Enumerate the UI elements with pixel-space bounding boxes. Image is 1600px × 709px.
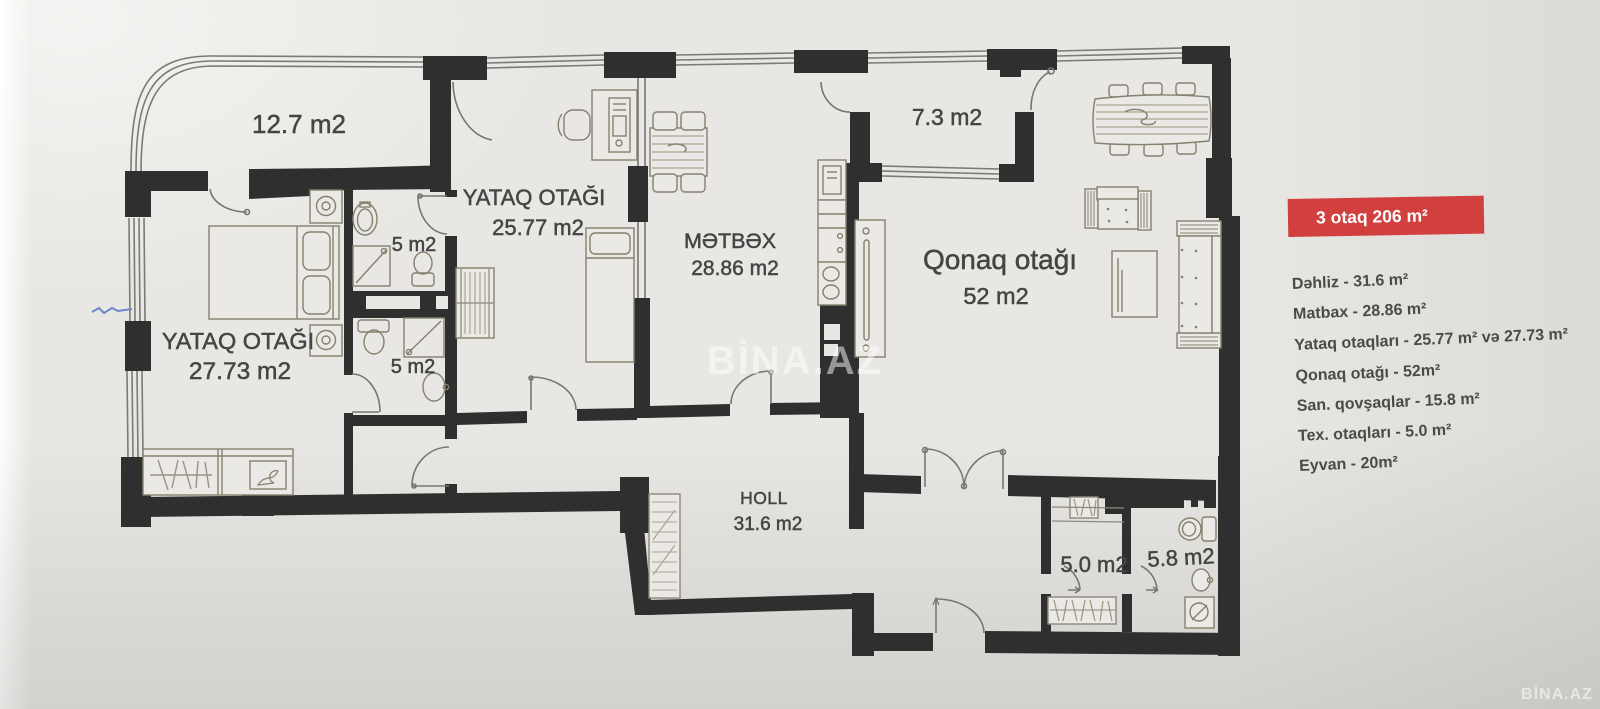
svg-text:5 m2: 5 m2 — [392, 234, 436, 256]
svg-text:MƏTBƏX: MƏTBƏX — [684, 229, 776, 253]
svg-text:3 otaq 206 m²: 3 otaq 206 m² — [1316, 206, 1428, 228]
svg-text:HOLL: HOLL — [740, 488, 788, 508]
svg-text:27.73 m2: 27.73 m2 — [189, 358, 291, 385]
svg-text:5 m2: 5 m2 — [391, 356, 435, 378]
svg-text:YATAQ OTAĞI: YATAQ OTAĞI — [463, 185, 606, 210]
svg-text:7.3 m2: 7.3 m2 — [912, 104, 982, 130]
svg-text:52 m2: 52 m2 — [963, 283, 1028, 309]
svg-text:5.8 m2: 5.8 m2 — [1147, 543, 1215, 571]
svg-text:12.7 m2: 12.7 m2 — [252, 109, 346, 139]
svg-text:31.6 m2: 31.6 m2 — [734, 514, 803, 535]
svg-text:Qonaq otağı: Qonaq otağı — [923, 244, 1077, 275]
svg-text:YATAQ OTAĞI: YATAQ OTAĞI — [162, 328, 314, 354]
svg-text:BİNA.AZ: BİNA.AZ — [707, 339, 883, 383]
svg-text:BİNA.AZ: BİNA.AZ — [1521, 685, 1593, 703]
svg-text:25.77 m2: 25.77 m2 — [492, 215, 584, 240]
svg-text:5.0 m2: 5.0 m2 — [1060, 552, 1127, 577]
svg-text:28.86 m2: 28.86 m2 — [691, 257, 779, 280]
